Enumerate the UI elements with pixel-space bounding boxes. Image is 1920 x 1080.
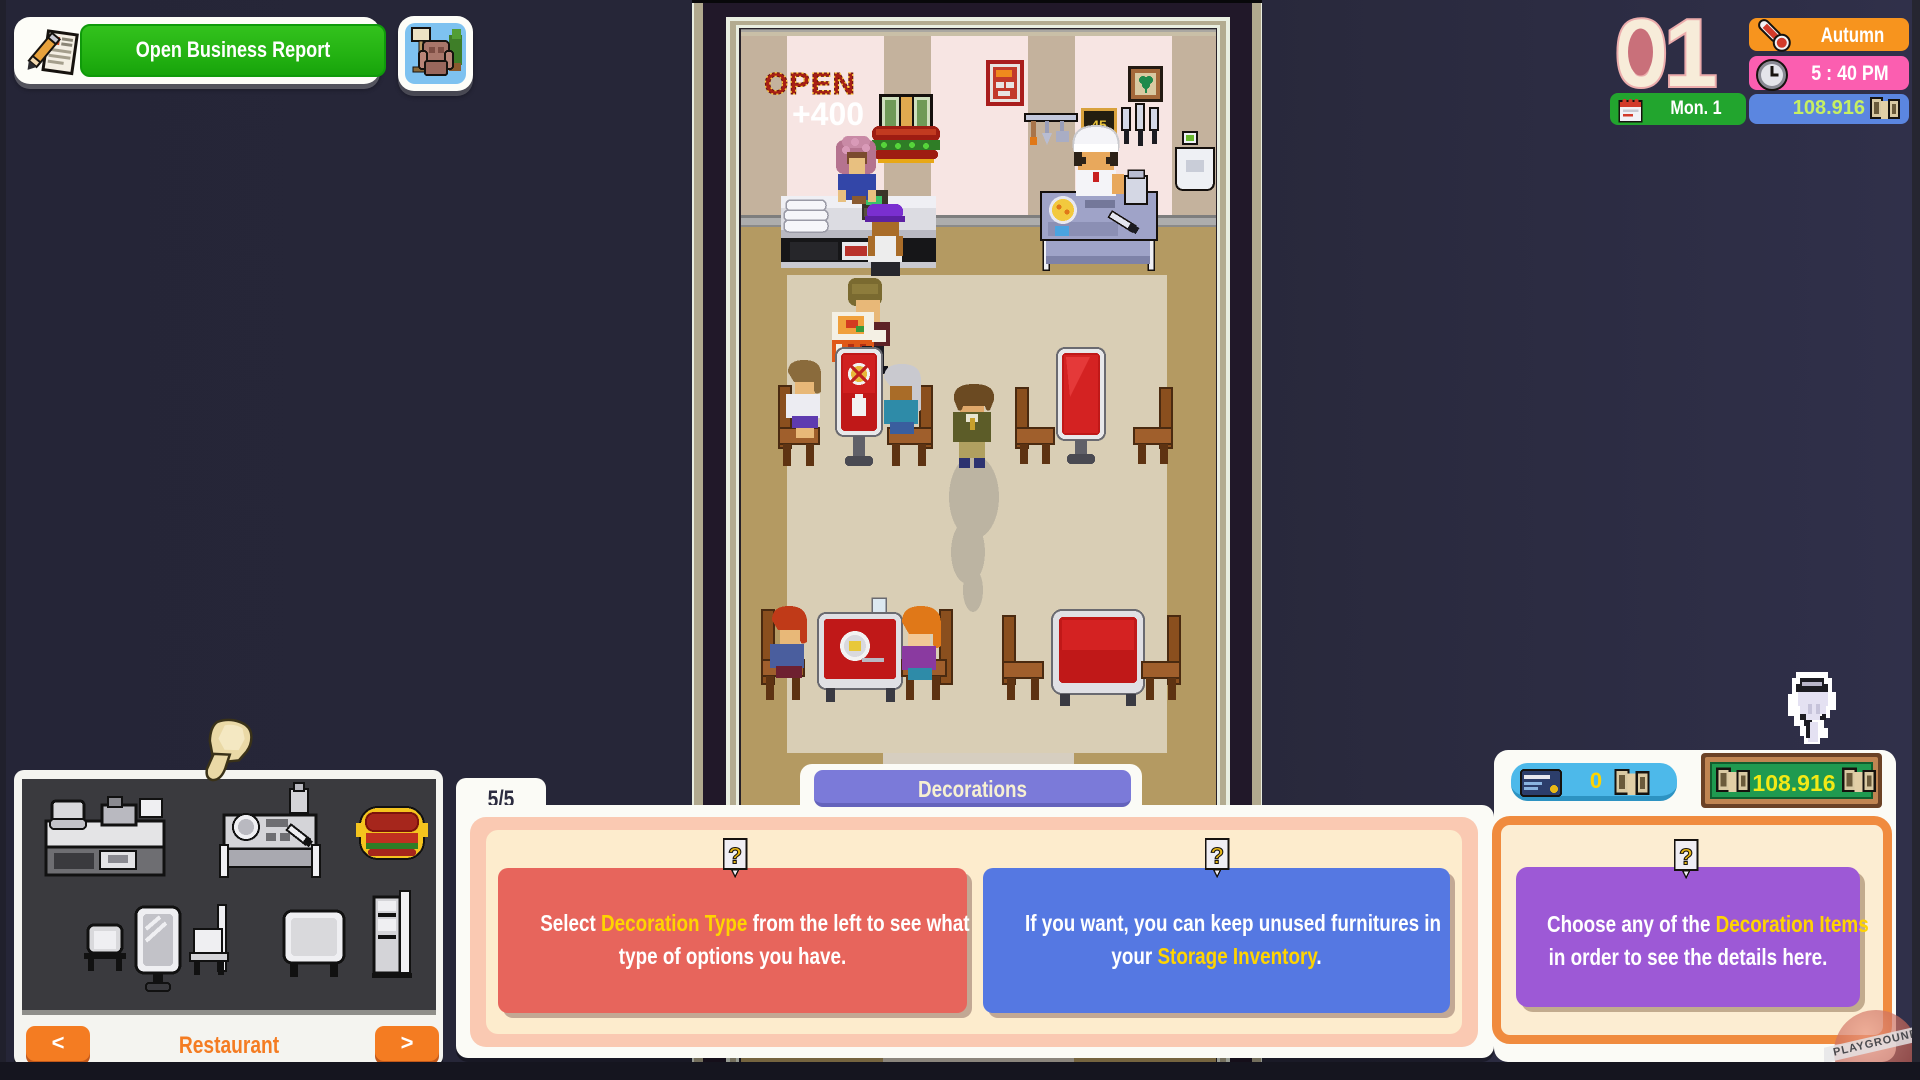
svg-text:?: ? (728, 843, 742, 869)
svg-text:?: ? (1210, 843, 1224, 869)
svg-text:+400: +400 (792, 96, 864, 132)
svg-text:?: ? (1679, 844, 1693, 870)
